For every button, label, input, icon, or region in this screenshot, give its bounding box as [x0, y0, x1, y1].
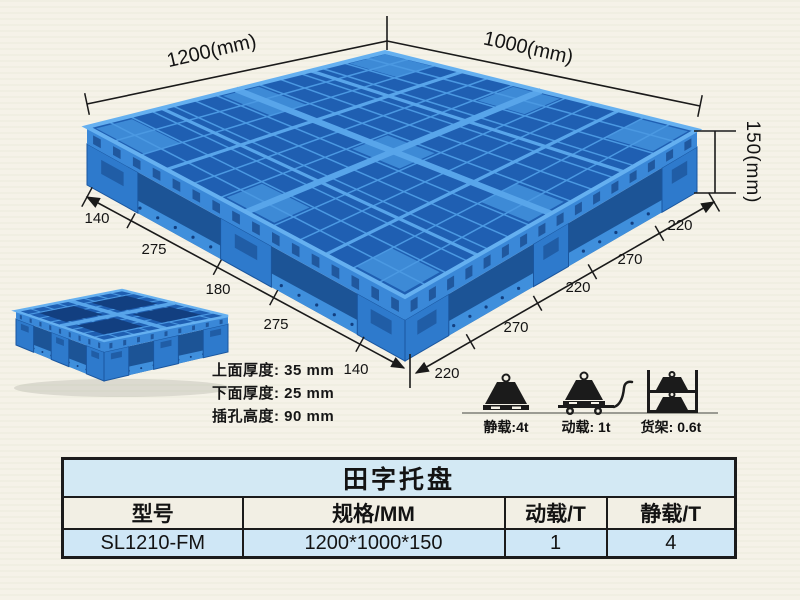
dim-left-4: 140	[343, 361, 368, 378]
dynamic-load-label: 动载: 1t	[562, 419, 611, 435]
table-header-static-load: 静载/T	[607, 497, 736, 529]
dim-right-4: 220	[667, 217, 692, 234]
table-header-spec: 规格/MM	[243, 497, 505, 529]
spec-table: 田字托盘 型号 规格/MM 动载/T 静载/T SL1210-FM 1200*1…	[61, 457, 737, 559]
dim-label-height: 150(mm)	[742, 120, 763, 203]
table-header-dynamic-load: 动载/T	[505, 497, 607, 529]
small-pallet	[16, 290, 228, 381]
spec-line-top-thickness: 上面厚度: 35 mm	[212, 359, 334, 382]
static-load-label: 静载:4t	[483, 419, 528, 435]
cell-model: SL1210-FM	[63, 529, 243, 558]
dynamic-load-icon	[558, 373, 632, 416]
dim-left-3: 275	[263, 316, 288, 333]
cell-static-load: 4	[607, 529, 736, 558]
rack-load-icon	[647, 370, 698, 413]
spec-line-fork-height: 插孔高度: 90 mm	[212, 405, 334, 428]
dim-left-1: 275	[141, 241, 166, 258]
table-row: SL1210-FM 1200*1000*150 1 4	[63, 529, 736, 558]
dim-right-0: 220	[434, 365, 459, 382]
cell-dynamic-load: 1	[505, 529, 607, 558]
rack-load-label: 货架: 0.6t	[640, 419, 702, 435]
static-load-icon	[483, 375, 529, 411]
small-pallet-shadow	[14, 379, 230, 397]
thickness-specs: 上面厚度: 35 mm 下面厚度: 25 mm 插孔高度: 90 mm	[212, 359, 334, 428]
dim-right-3: 270	[617, 251, 642, 268]
cell-spec: 1200*1000*150	[243, 529, 505, 558]
dim-left-0: 140	[84, 210, 109, 227]
dim-label-width: 1200(mm)	[165, 30, 259, 72]
dim-label-depth: 1000(mm)	[481, 28, 575, 69]
table-title: 田字托盘	[63, 459, 736, 498]
dim-right-1: 270	[503, 319, 528, 336]
page: { "colors": { "pallet_blue": "#2f80d0", …	[0, 0, 800, 600]
load-ratings: 静载:4t 动载: 1t 货架: 0.6t	[458, 368, 728, 446]
spec-line-bottom-thickness: 下面厚度: 25 mm	[212, 382, 334, 405]
dim-left-2: 180	[205, 281, 230, 298]
table-header-model: 型号	[63, 497, 243, 529]
dim-right-2: 220	[565, 279, 590, 296]
